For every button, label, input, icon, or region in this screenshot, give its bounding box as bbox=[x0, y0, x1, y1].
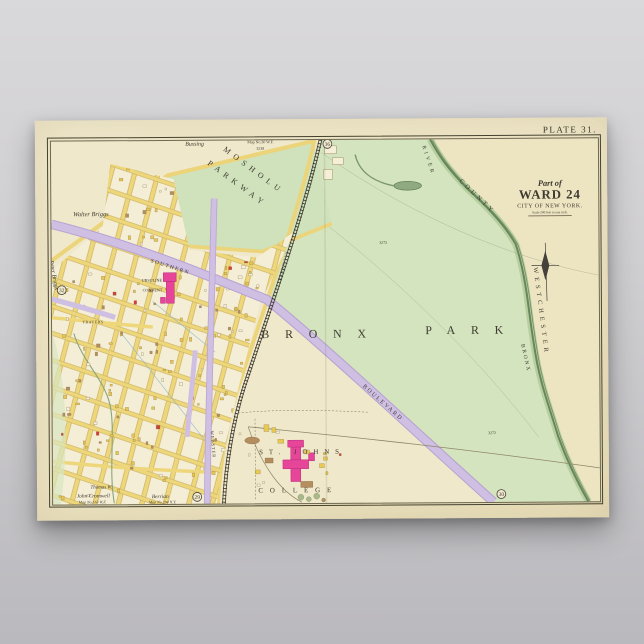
building-footprint bbox=[151, 445, 153, 448]
building-footprint bbox=[97, 448, 99, 450]
building-footprint bbox=[215, 308, 217, 310]
building-footprint bbox=[86, 397, 90, 400]
building-footprint bbox=[192, 472, 194, 476]
building-footprint bbox=[248, 453, 250, 455]
building-footprint bbox=[96, 343, 100, 346]
building-footprint bbox=[164, 476, 167, 478]
building-footprint bbox=[108, 389, 110, 391]
building-footprint bbox=[93, 421, 97, 423]
building-footprint bbox=[67, 413, 71, 415]
building-footprint bbox=[142, 210, 145, 214]
building-footprint bbox=[131, 461, 134, 465]
building-footprint bbox=[201, 368, 203, 370]
marker-29: 29 bbox=[194, 494, 200, 500]
building-footprint bbox=[58, 495, 60, 497]
building-footprint bbox=[75, 379, 78, 381]
building-footprint bbox=[155, 350, 157, 353]
building-footprint bbox=[170, 191, 174, 194]
building-footprint bbox=[151, 406, 154, 409]
building-footprint bbox=[131, 433, 134, 436]
building-footprint bbox=[249, 271, 251, 273]
building-footprint bbox=[66, 386, 70, 389]
building-footprint bbox=[159, 474, 162, 476]
building-footprint bbox=[133, 439, 135, 441]
building-footprint bbox=[211, 471, 214, 474]
building-footprint bbox=[216, 414, 219, 416]
building-footprint bbox=[197, 403, 199, 405]
building-footprint bbox=[109, 434, 112, 436]
building-footprint bbox=[276, 431, 279, 433]
building-footprint bbox=[83, 347, 85, 350]
building-footprint bbox=[98, 441, 100, 443]
building-footprint bbox=[115, 404, 118, 407]
building-footprint bbox=[75, 402, 79, 404]
label-walter-briggs: Walter Briggs bbox=[73, 211, 109, 218]
building-footprint bbox=[110, 384, 112, 386]
building-footprint bbox=[245, 339, 249, 341]
building-footprint bbox=[108, 342, 112, 344]
building-footprint bbox=[153, 302, 155, 304]
building-footprint bbox=[108, 392, 111, 396]
building-footprint bbox=[143, 309, 145, 312]
building-footprint bbox=[179, 382, 182, 386]
building-footprint bbox=[179, 338, 182, 341]
building-footprint bbox=[225, 391, 227, 394]
building-footprint bbox=[142, 236, 144, 238]
building-footprint bbox=[219, 431, 223, 433]
building-footprint bbox=[231, 330, 233, 332]
building-footprint bbox=[102, 305, 104, 309]
building-footprint bbox=[61, 496, 64, 500]
building-footprint bbox=[189, 337, 191, 341]
marker-32: 32 bbox=[58, 288, 64, 294]
building-footprint bbox=[248, 273, 252, 275]
building-footprint bbox=[170, 360, 173, 363]
building-footprint bbox=[153, 396, 155, 399]
building-footprint bbox=[162, 479, 165, 481]
building-footprint bbox=[249, 261, 253, 264]
label-st-johns: ST. JOHNS bbox=[259, 448, 345, 456]
title-city: CITY OF NEW YORK. bbox=[517, 203, 582, 209]
building-footprint bbox=[66, 407, 69, 410]
title-scale: Scale 200 feet to one inch. bbox=[532, 210, 568, 214]
building-footprint bbox=[101, 276, 104, 279]
label-ursuline: URSULINE bbox=[141, 277, 162, 282]
label-berrian-map: Map No.294 N.Y. bbox=[147, 499, 175, 504]
building-footprint bbox=[164, 331, 166, 335]
building-footprint bbox=[155, 342, 157, 345]
building-footprint bbox=[156, 425, 160, 429]
building-footprint bbox=[159, 190, 161, 192]
building-footprint bbox=[125, 213, 128, 216]
building-footprint bbox=[228, 334, 230, 338]
label-cromwell-map: Map No.163 W.F. bbox=[77, 499, 106, 504]
building-footprint bbox=[119, 178, 123, 181]
pond bbox=[393, 181, 421, 190]
building-footprint bbox=[220, 397, 224, 399]
building-footprint bbox=[130, 467, 133, 469]
label-thomas: Thomas W. bbox=[90, 485, 112, 490]
plate-number-label: PLATE 31. bbox=[543, 124, 597, 134]
building-footprint bbox=[239, 432, 241, 434]
building-footprint bbox=[72, 280, 74, 282]
building-footprint bbox=[115, 451, 118, 454]
building-footprint bbox=[125, 407, 128, 410]
atlas-map: BRONX PARK MOSHOLU PARKWAY Bussing Map N… bbox=[50, 138, 599, 504]
building-footprint bbox=[116, 415, 118, 417]
label-acreage-2: 3272 bbox=[488, 430, 496, 435]
building-footprint bbox=[154, 208, 156, 211]
building-footprint bbox=[240, 362, 243, 364]
label-bussing: Bussing bbox=[185, 141, 204, 147]
building-footprint bbox=[161, 378, 163, 382]
building-footprint bbox=[217, 333, 220, 336]
building-footprint bbox=[120, 334, 122, 336]
label-bronx: BRONX bbox=[261, 326, 382, 341]
building-footprint bbox=[225, 266, 227, 269]
gray-backdrop: PLATE 31. bbox=[0, 0, 644, 644]
building-footprint bbox=[62, 334, 65, 337]
building-footprint bbox=[180, 317, 182, 320]
building-footprint bbox=[238, 329, 241, 331]
building-footprint bbox=[95, 352, 97, 356]
label-convent: CONVENT bbox=[142, 287, 162, 292]
building-footprint bbox=[146, 441, 148, 444]
marker-30: 30 bbox=[498, 491, 504, 497]
building-footprint bbox=[164, 188, 166, 190]
building-footprint bbox=[224, 272, 226, 275]
building-footprint bbox=[106, 439, 109, 441]
label-travers: TRAVERS bbox=[82, 319, 103, 324]
building-footprint bbox=[162, 369, 165, 371]
building-footprint bbox=[216, 287, 219, 291]
building-footprint bbox=[223, 304, 226, 307]
building-footprint bbox=[244, 261, 247, 263]
building-footprint bbox=[141, 352, 143, 355]
building-footprint bbox=[138, 437, 140, 440]
building-footprint bbox=[83, 440, 85, 444]
title-ward: WARD 24 bbox=[518, 187, 580, 201]
building-footprint bbox=[198, 374, 200, 376]
building-footprint bbox=[234, 308, 238, 310]
building-footprint bbox=[150, 235, 153, 238]
building-footprint bbox=[117, 488, 119, 492]
building-footprint bbox=[149, 351, 151, 354]
building-footprint bbox=[140, 242, 142, 245]
building-footprint bbox=[199, 305, 201, 307]
building-footprint bbox=[128, 235, 130, 239]
building-footprint bbox=[146, 208, 150, 211]
building-footprint bbox=[142, 184, 146, 186]
building-footprint bbox=[88, 272, 91, 274]
title-part-of: Part of bbox=[537, 178, 562, 187]
building-footprint bbox=[241, 265, 245, 268]
building-footprint bbox=[133, 290, 135, 293]
building-footprint bbox=[255, 287, 257, 289]
building-footprint bbox=[238, 275, 242, 278]
building-footprint bbox=[256, 284, 258, 286]
building-footprint bbox=[62, 412, 64, 415]
map-poster: PLATE 31. bbox=[35, 117, 609, 520]
building-footprint bbox=[256, 484, 259, 486]
building-footprint bbox=[179, 275, 181, 278]
label-college: COLLEGE bbox=[258, 487, 338, 494]
building-footprint bbox=[66, 317, 68, 320]
marker-36: 36 bbox=[324, 141, 330, 147]
building-footprint bbox=[245, 282, 248, 285]
building-footprint bbox=[139, 346, 141, 348]
building-footprint bbox=[86, 363, 90, 365]
building-footprint bbox=[204, 289, 206, 291]
building-footprint bbox=[61, 433, 63, 435]
building-footprint bbox=[177, 292, 180, 295]
label-bussing-map: Map No.30 W.F. bbox=[247, 139, 273, 144]
building-footprint bbox=[262, 481, 264, 483]
map-border-frame: BRONX PARK MOSHOLU PARKWAY Bussing Map N… bbox=[47, 134, 603, 507]
label-park: PARK bbox=[425, 322, 519, 337]
building-footprint bbox=[168, 370, 171, 372]
label-bussing-block: 3238 bbox=[256, 145, 264, 150]
building-footprint bbox=[222, 385, 224, 388]
label-acreage-1: 3272 bbox=[379, 239, 387, 244]
building-footprint bbox=[154, 238, 158, 241]
building-footprint bbox=[228, 327, 231, 330]
building-footprint bbox=[63, 395, 66, 399]
building-footprint bbox=[112, 291, 115, 294]
building-footprint bbox=[238, 310, 240, 313]
building-footprint bbox=[137, 282, 139, 284]
building-footprint bbox=[85, 446, 87, 448]
building-footprint bbox=[244, 313, 246, 317]
